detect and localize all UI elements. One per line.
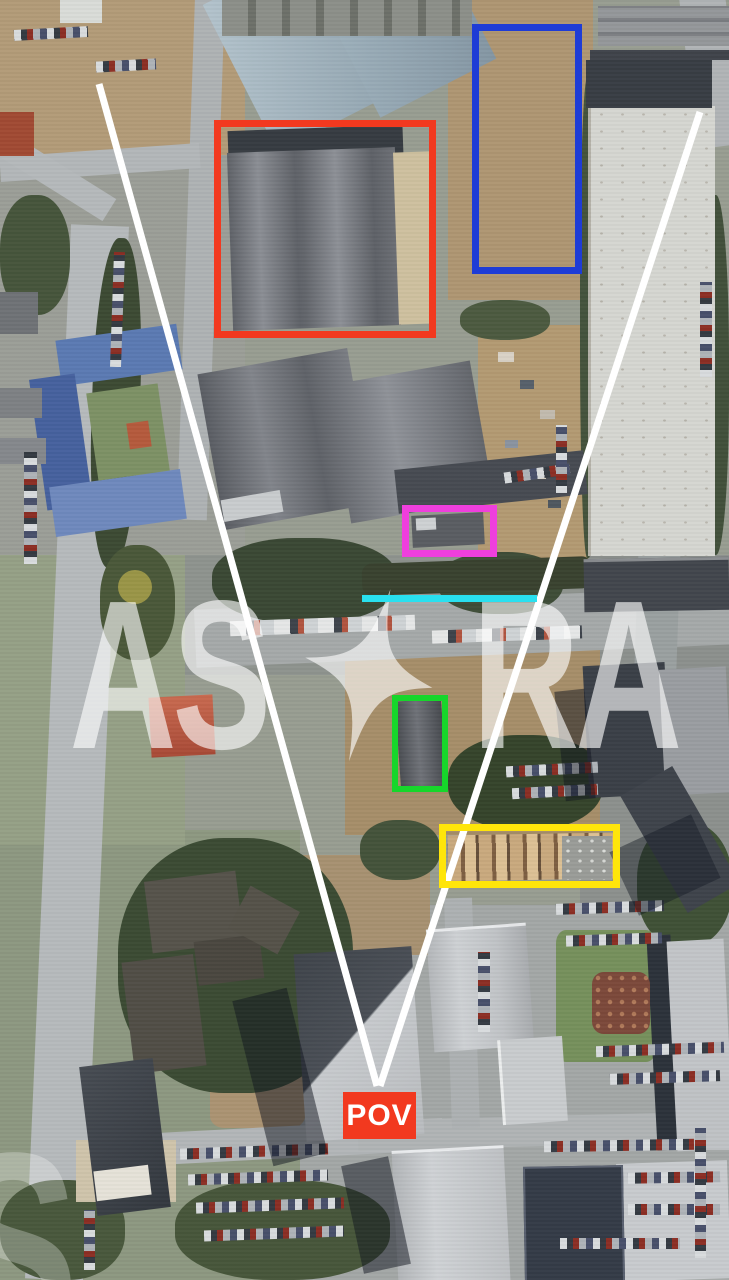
blue-highlight-box [472, 24, 582, 274]
car-row [628, 1171, 720, 1184]
car-row [560, 1238, 680, 1249]
car-row [695, 1128, 706, 1258]
magenta-highlight-box [402, 505, 497, 557]
apartment-building [497, 1036, 568, 1125]
cyan-highlight-line [362, 595, 537, 602]
yellow-highlight-box [439, 824, 620, 888]
building [60, 0, 102, 23]
car-row [478, 952, 490, 1032]
building [126, 421, 151, 450]
satellite-map: AS RA S POV [0, 0, 729, 1280]
building [0, 112, 34, 156]
sports-court [523, 1165, 625, 1280]
building [0, 438, 46, 464]
construction-material [548, 500, 561, 508]
astra-watermark: AS RA [10, 575, 729, 775]
building [586, 60, 712, 108]
playground [592, 972, 650, 1034]
car-row [556, 425, 567, 493]
car-row [628, 1204, 720, 1215]
building [590, 50, 729, 60]
astra-watermark-fragment: S [0, 1112, 79, 1280]
building [598, 6, 729, 46]
construction-material [505, 440, 518, 448]
car-row [700, 282, 712, 377]
car-row [84, 1210, 95, 1270]
red-highlight-box [214, 120, 436, 338]
pov-marker: POV [343, 1092, 416, 1139]
trees [360, 820, 440, 880]
construction-material [498, 352, 514, 362]
building [121, 954, 206, 1074]
building [0, 292, 38, 334]
watermark-text-left: AS [70, 569, 268, 781]
green-highlight-box [392, 695, 448, 792]
pov-label: POV [346, 1099, 412, 1133]
construction-material [520, 380, 534, 389]
building [0, 388, 42, 418]
white-warehouse [588, 106, 715, 556]
trees [460, 300, 550, 340]
car-row [24, 452, 37, 564]
building [222, 0, 472, 36]
construction-material [540, 410, 555, 419]
